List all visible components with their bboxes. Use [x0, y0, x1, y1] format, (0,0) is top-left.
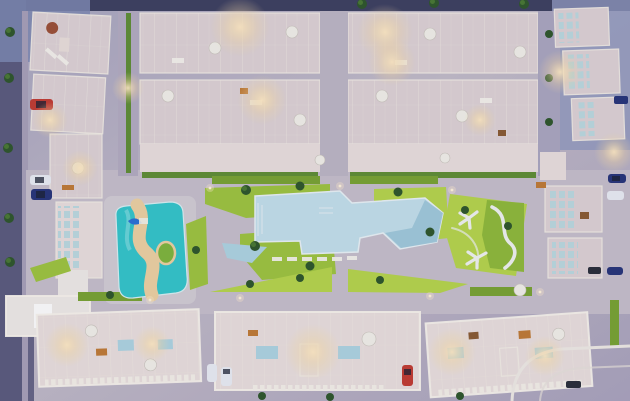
scene-canvas	[0, 0, 630, 401]
aerial-render	[0, 0, 630, 401]
dusk-tint	[0, 0, 630, 401]
